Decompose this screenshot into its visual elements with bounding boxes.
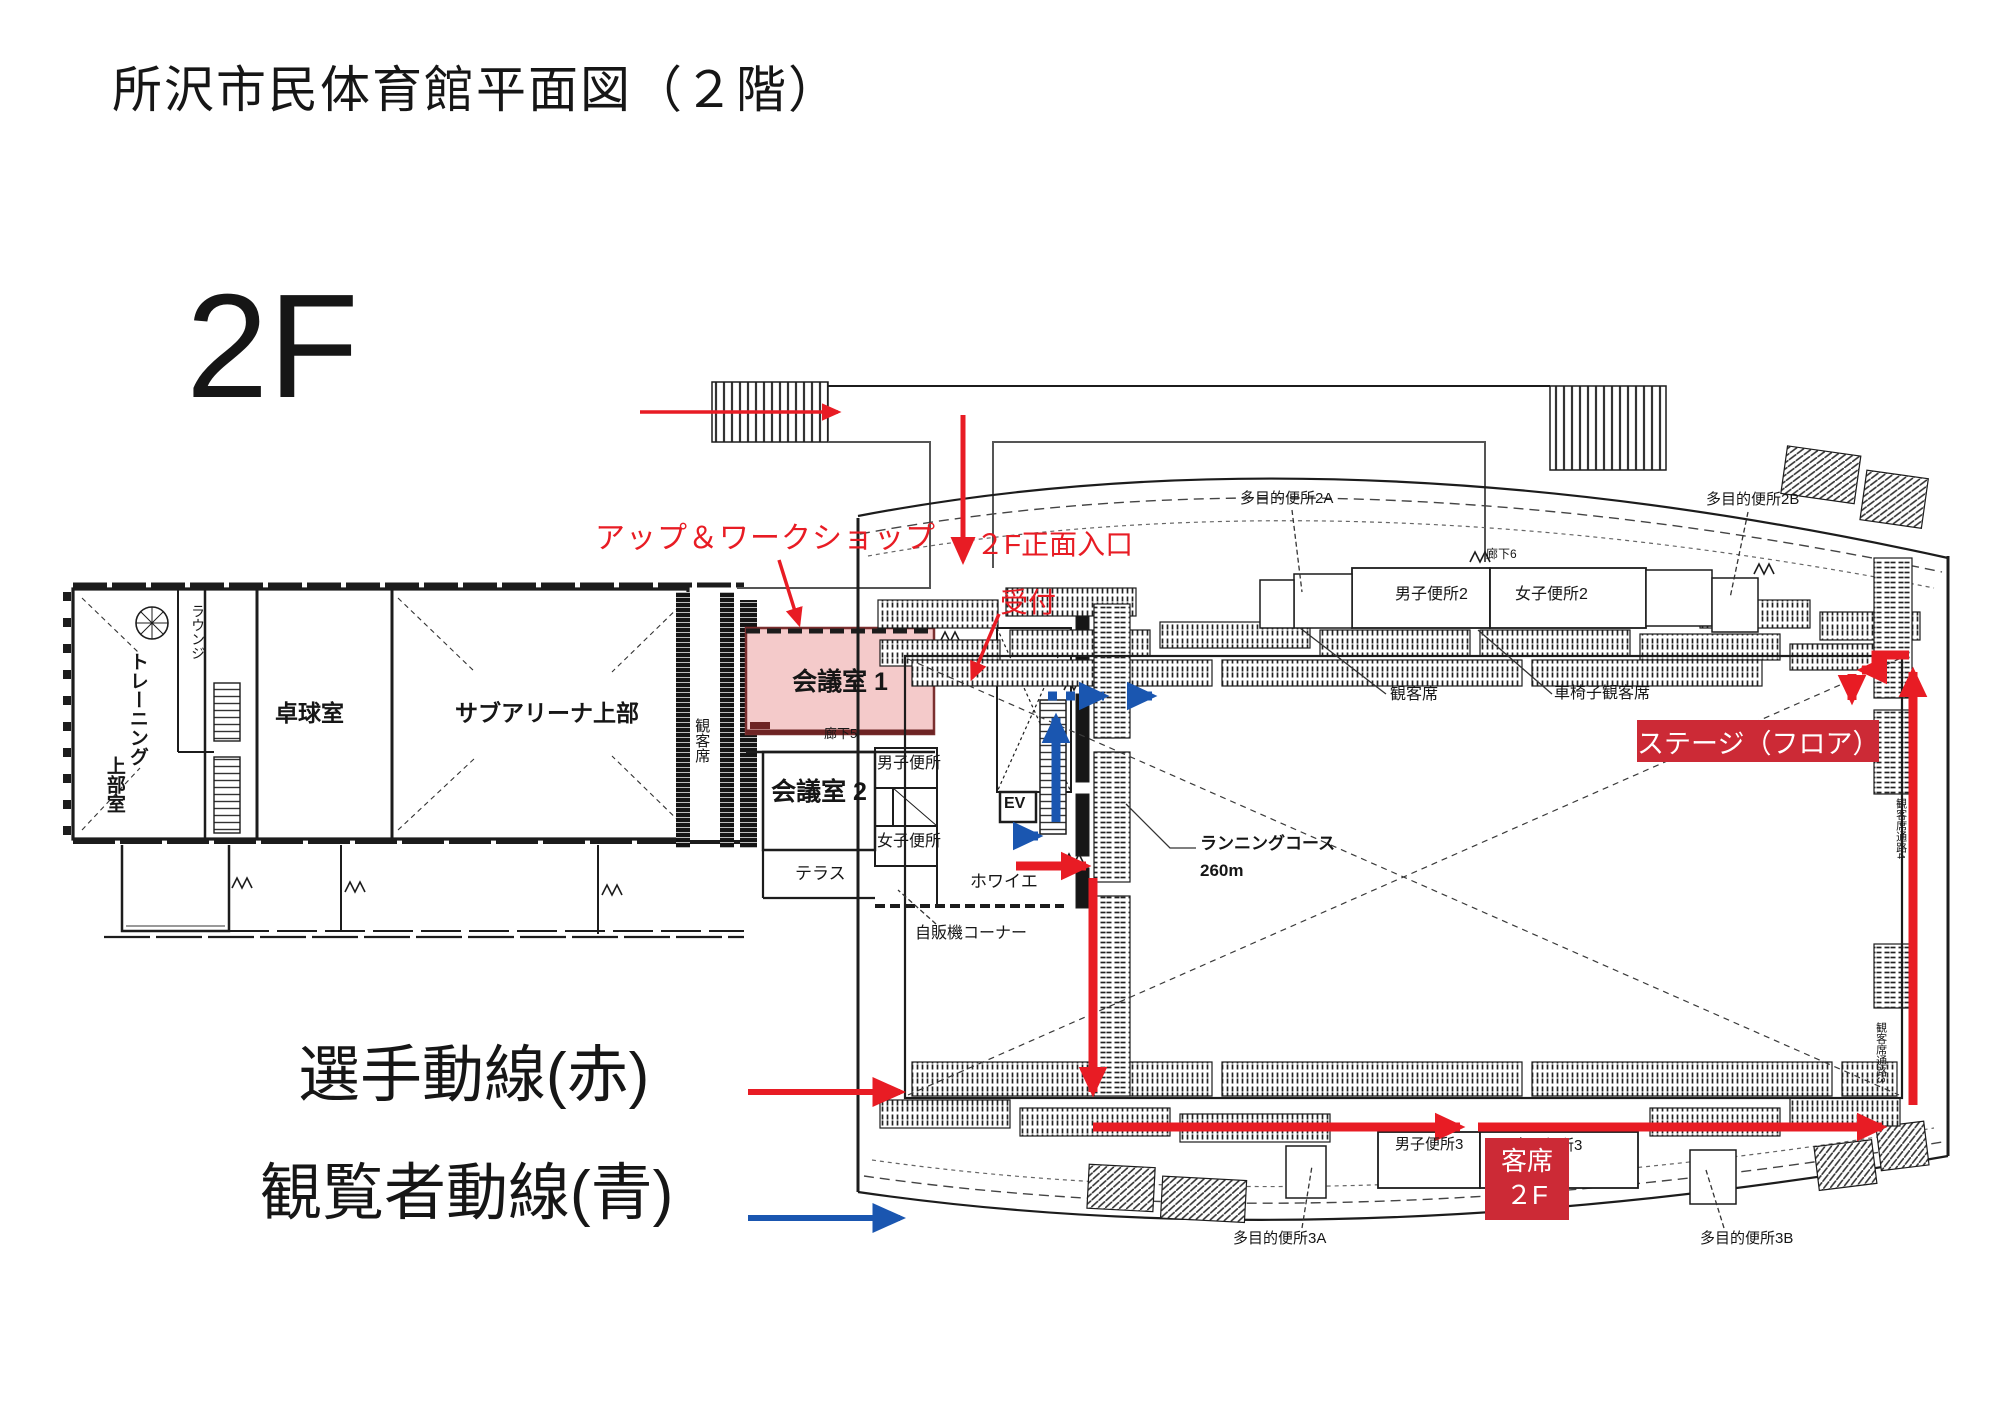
entry-bridges-courtyards	[712, 382, 1666, 588]
legend-players-route: 選手動線(赤)	[298, 1040, 649, 1111]
room-elevator: EV	[1004, 795, 1025, 813]
lower-wing-walls	[104, 845, 744, 937]
label-multi-wc-2a: 多目的便所2A	[1240, 490, 1333, 507]
room-meeting-2: 会議室 2	[763, 778, 875, 807]
room-womens-wc: 女子便所	[877, 833, 941, 851]
room-sub-arena: サブアリーナ上部	[455, 700, 639, 726]
room-training-upper-line1: トレーニング	[126, 652, 148, 766]
label-wheelchair-seats: 車椅子観客席	[1554, 685, 1650, 703]
page-title: 所沢市民体育館平面図（２階）	[112, 62, 840, 120]
floor-mark: 2F	[186, 262, 359, 432]
room-womens-wc2: 女子便所2	[1515, 586, 1588, 604]
label-corridor6: 廊下6	[1486, 548, 1517, 562]
left-wing-walls	[67, 585, 744, 842]
stage-floor-badge: ステージ（フロア）	[1637, 720, 1879, 762]
room-table-tennis: 卓球室	[275, 700, 344, 726]
label-multi-wc-3b: 多目的便所3B	[1700, 1230, 1793, 1247]
label-running-course: ランニングコース	[1200, 834, 1335, 854]
room-foyer: ホワイエ	[970, 872, 1038, 892]
red-route-arrows	[640, 412, 1913, 1127]
arena-seat-bands	[878, 558, 1920, 1142]
audience-2f-badge-line1: 客席	[1501, 1145, 1553, 1179]
room-lounge: ラウンジ	[190, 604, 206, 660]
legend-arrows	[748, 1092, 900, 1218]
annotation-warmup: アップ＆ワークショップ	[595, 522, 936, 557]
room-mens-wc: 男子便所	[877, 755, 941, 773]
audience-2f-badge: 客席 ２F	[1485, 1138, 1569, 1220]
label-aisle3: 観客席通路3	[1874, 1022, 1887, 1083]
label-corridor5: 廊下5	[824, 727, 857, 742]
annotation-entrance: ２F正面入口	[976, 529, 1133, 561]
label-vending-corner: 自販機コーナー	[915, 925, 1027, 943]
room-mens-wc2: 男子便所2	[1395, 586, 1468, 604]
floor-plan-page: 所沢市民体育館平面図（２階） 2F アップ＆ワークショップ ２F正面入口 受付 …	[0, 0, 2000, 1414]
room-meeting-1: 会議室 1	[746, 668, 934, 697]
room-terrace: テラス	[795, 864, 846, 884]
room-training-upper-line2: 上部室	[103, 756, 125, 813]
label-subarena-seats: 観客席	[693, 718, 710, 763]
room-mens-wc3: 男子便所3	[1395, 1136, 1463, 1153]
stage-floor-badge-label: ステージ（フロア）	[1637, 722, 1879, 761]
label-arena-seats: 観客席	[1390, 686, 1438, 704]
audience-2f-badge-line2: ２F	[1506, 1179, 1548, 1213]
label-aisle4: 観客席通路4	[1894, 798, 1907, 859]
label-multi-wc-2b: 多目的便所2B	[1706, 491, 1799, 508]
label-running-length: 260m	[1200, 861, 1243, 881]
legend-spectators-route: 観覧者動線(青)	[260, 1158, 673, 1229]
annotation-reception: 受付	[1000, 587, 1056, 619]
label-multi-wc-3a: 多目的便所3A	[1233, 1230, 1326, 1247]
